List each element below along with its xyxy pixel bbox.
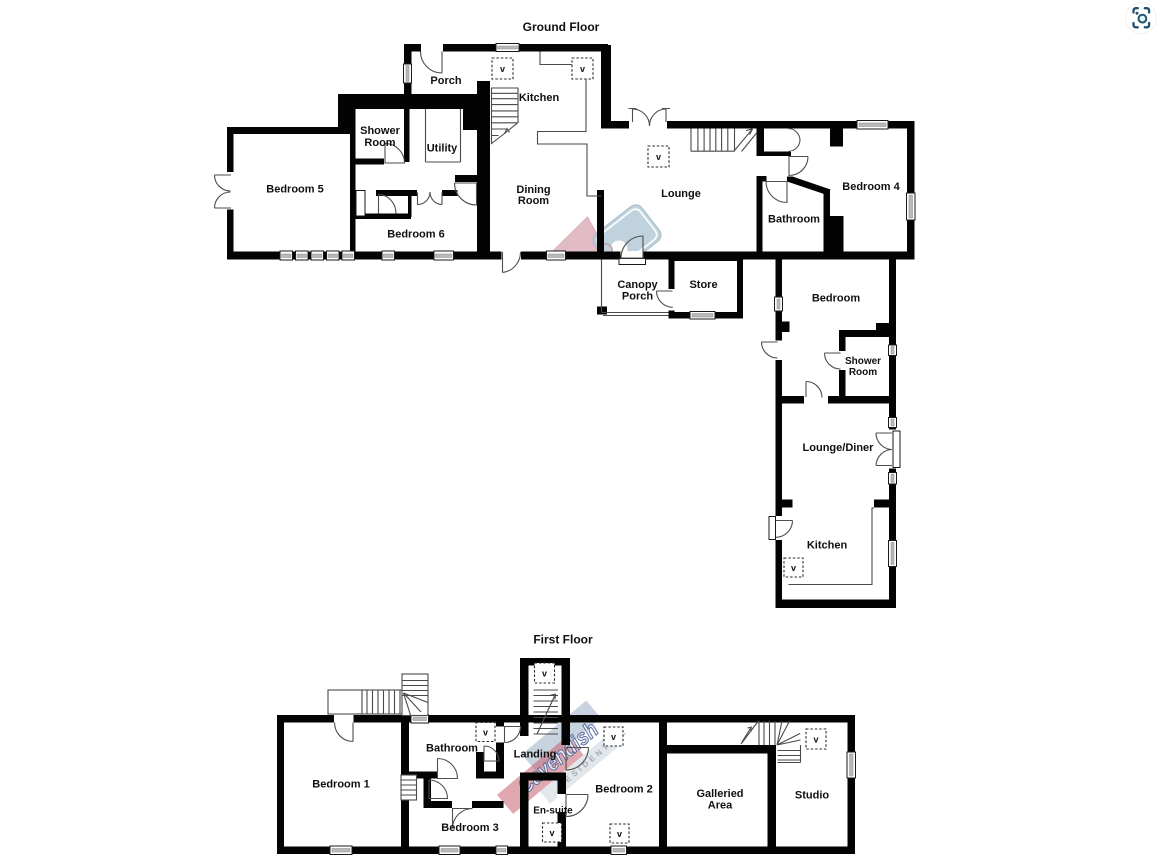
svg-text:Bathroom: Bathroom (768, 214, 820, 226)
svg-text:v: v (611, 732, 616, 742)
svg-text:v: v (813, 735, 818, 745)
svg-text:v: v (791, 563, 796, 573)
svg-text:Porch: Porch (622, 291, 653, 303)
svg-text:v: v (549, 828, 554, 838)
svg-text:v: v (656, 152, 661, 162)
svg-text:Room: Room (518, 195, 549, 207)
svg-text:Bedroom 1: Bedroom 1 (312, 779, 369, 791)
svg-text:Bedroom 5: Bedroom 5 (266, 184, 323, 196)
svg-text:Bedroom 2: Bedroom 2 (595, 784, 652, 796)
svg-text:Shower: Shower (845, 356, 881, 367)
svg-text:v: v (617, 829, 622, 839)
svg-text:Room: Room (849, 367, 877, 378)
svg-text:v: v (500, 64, 505, 74)
svg-text:Area: Area (708, 800, 733, 812)
svg-text:v: v (542, 669, 547, 679)
svg-text:First Floor: First Floor (533, 633, 593, 647)
svg-text:Lounge/Diner: Lounge/Diner (803, 442, 875, 454)
svg-text:Kitchen: Kitchen (807, 540, 848, 552)
svg-text:Shower: Shower (360, 125, 400, 137)
svg-text:Store: Store (689, 279, 717, 291)
svg-text:Galleried: Galleried (696, 788, 743, 800)
svg-text:v: v (483, 728, 488, 738)
svg-text:Bedroom: Bedroom (812, 293, 861, 305)
svg-text:Landing: Landing (514, 749, 557, 761)
svg-text:Bathroom: Bathroom (426, 743, 478, 755)
svg-text:v: v (580, 64, 585, 74)
svg-text:Lounge: Lounge (661, 188, 701, 200)
svg-text:Kitchen: Kitchen (519, 92, 560, 104)
svg-text:Utility: Utility (427, 143, 458, 155)
svg-text:Canopy: Canopy (617, 279, 658, 291)
svg-text:Porch: Porch (430, 75, 461, 87)
svg-text:Bedroom 4: Bedroom 4 (842, 181, 900, 193)
svg-text:Bedroom 3: Bedroom 3 (441, 822, 498, 834)
svg-text:Ground Floor: Ground Floor (523, 20, 600, 34)
svg-text:Studio: Studio (795, 790, 829, 802)
svg-text:En-suite: En-suite (533, 806, 573, 817)
svg-text:Room: Room (364, 137, 395, 149)
svg-text:Bedroom 6: Bedroom 6 (387, 229, 444, 241)
